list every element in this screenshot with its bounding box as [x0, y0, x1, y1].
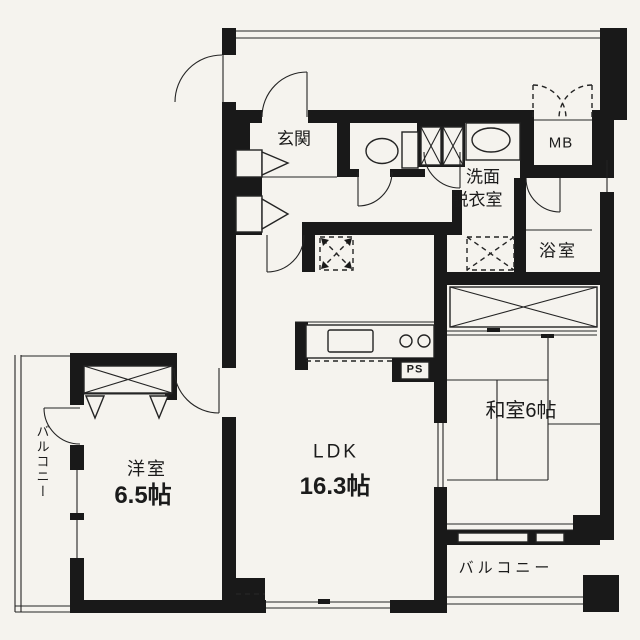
room-label-balcony-left: バルコニー — [36, 425, 49, 500]
storage-x — [323, 240, 350, 267]
room-label-washroom-line1: 洗面 — [466, 169, 500, 186]
closet-door-symbol — [86, 396, 104, 418]
room-label-pipe-space: PS — [407, 365, 424, 376]
stove-burner-icon — [400, 335, 412, 347]
room-label-ldk: LDK — [313, 443, 359, 462]
toilet-tank — [402, 132, 418, 168]
door-swing-arc — [267, 235, 304, 272]
stove-burner-icon — [418, 335, 430, 347]
bathroom-fixtures — [526, 178, 592, 230]
corridor-railing — [236, 31, 627, 38]
cabinet-door-symbol — [262, 199, 288, 229]
kitchen-sink-icon — [328, 330, 373, 352]
room-label-meter-box: MB — [549, 136, 574, 151]
wash-basin-icon — [472, 128, 510, 152]
door-swing-arc — [174, 368, 219, 413]
door-swing-arc — [358, 172, 392, 206]
closet-door-symbol — [150, 396, 168, 418]
shoe-cabinet — [236, 196, 262, 232]
window-sill — [536, 533, 564, 542]
toilet-bowl-icon — [366, 139, 398, 164]
arrow-icon — [344, 238, 352, 246]
sliding-door-handle — [487, 328, 500, 332]
room-size-ldk: 16.3帖 — [300, 475, 371, 499]
sliding-door-track — [447, 331, 597, 335]
dashed-storage-symbol — [320, 237, 353, 270]
room-size-western-room: 6.5帖 — [114, 484, 171, 508]
balcony-bottom-railing — [447, 597, 583, 604]
balcony-window-sills — [458, 533, 564, 542]
door-swing-arc — [175, 55, 222, 102]
window-sill — [458, 533, 528, 542]
room-label-genkan: 玄関 — [277, 131, 311, 148]
room-label-balcony-bottom: バルコニー — [459, 561, 554, 576]
floorplan: 玄関 洗面 脱衣室 MB 浴室 和室6帖 LDK 16.3帖 洋室 6.5帖 バ… — [0, 0, 640, 640]
arrow-icon — [321, 238, 329, 246]
room-label-western-room: 洋室 — [127, 460, 167, 478]
shoe-cabinet — [236, 150, 262, 177]
floorplan-drawing — [0, 0, 640, 640]
cabinet-door-symbol — [262, 152, 288, 175]
ldk-door — [267, 235, 304, 272]
door-swing-arc — [526, 178, 560, 212]
corridor-side-door — [175, 55, 223, 102]
room-label-washroom-line2: 脱衣室 — [452, 192, 503, 209]
room-label-japanese-room: 和室6帖 — [485, 401, 556, 421]
washing-machine-x — [467, 237, 514, 270]
sliding-window-handle — [318, 599, 330, 604]
room-label-bathroom: 浴室 — [539, 243, 577, 260]
balcony-sliding-door — [447, 524, 573, 530]
